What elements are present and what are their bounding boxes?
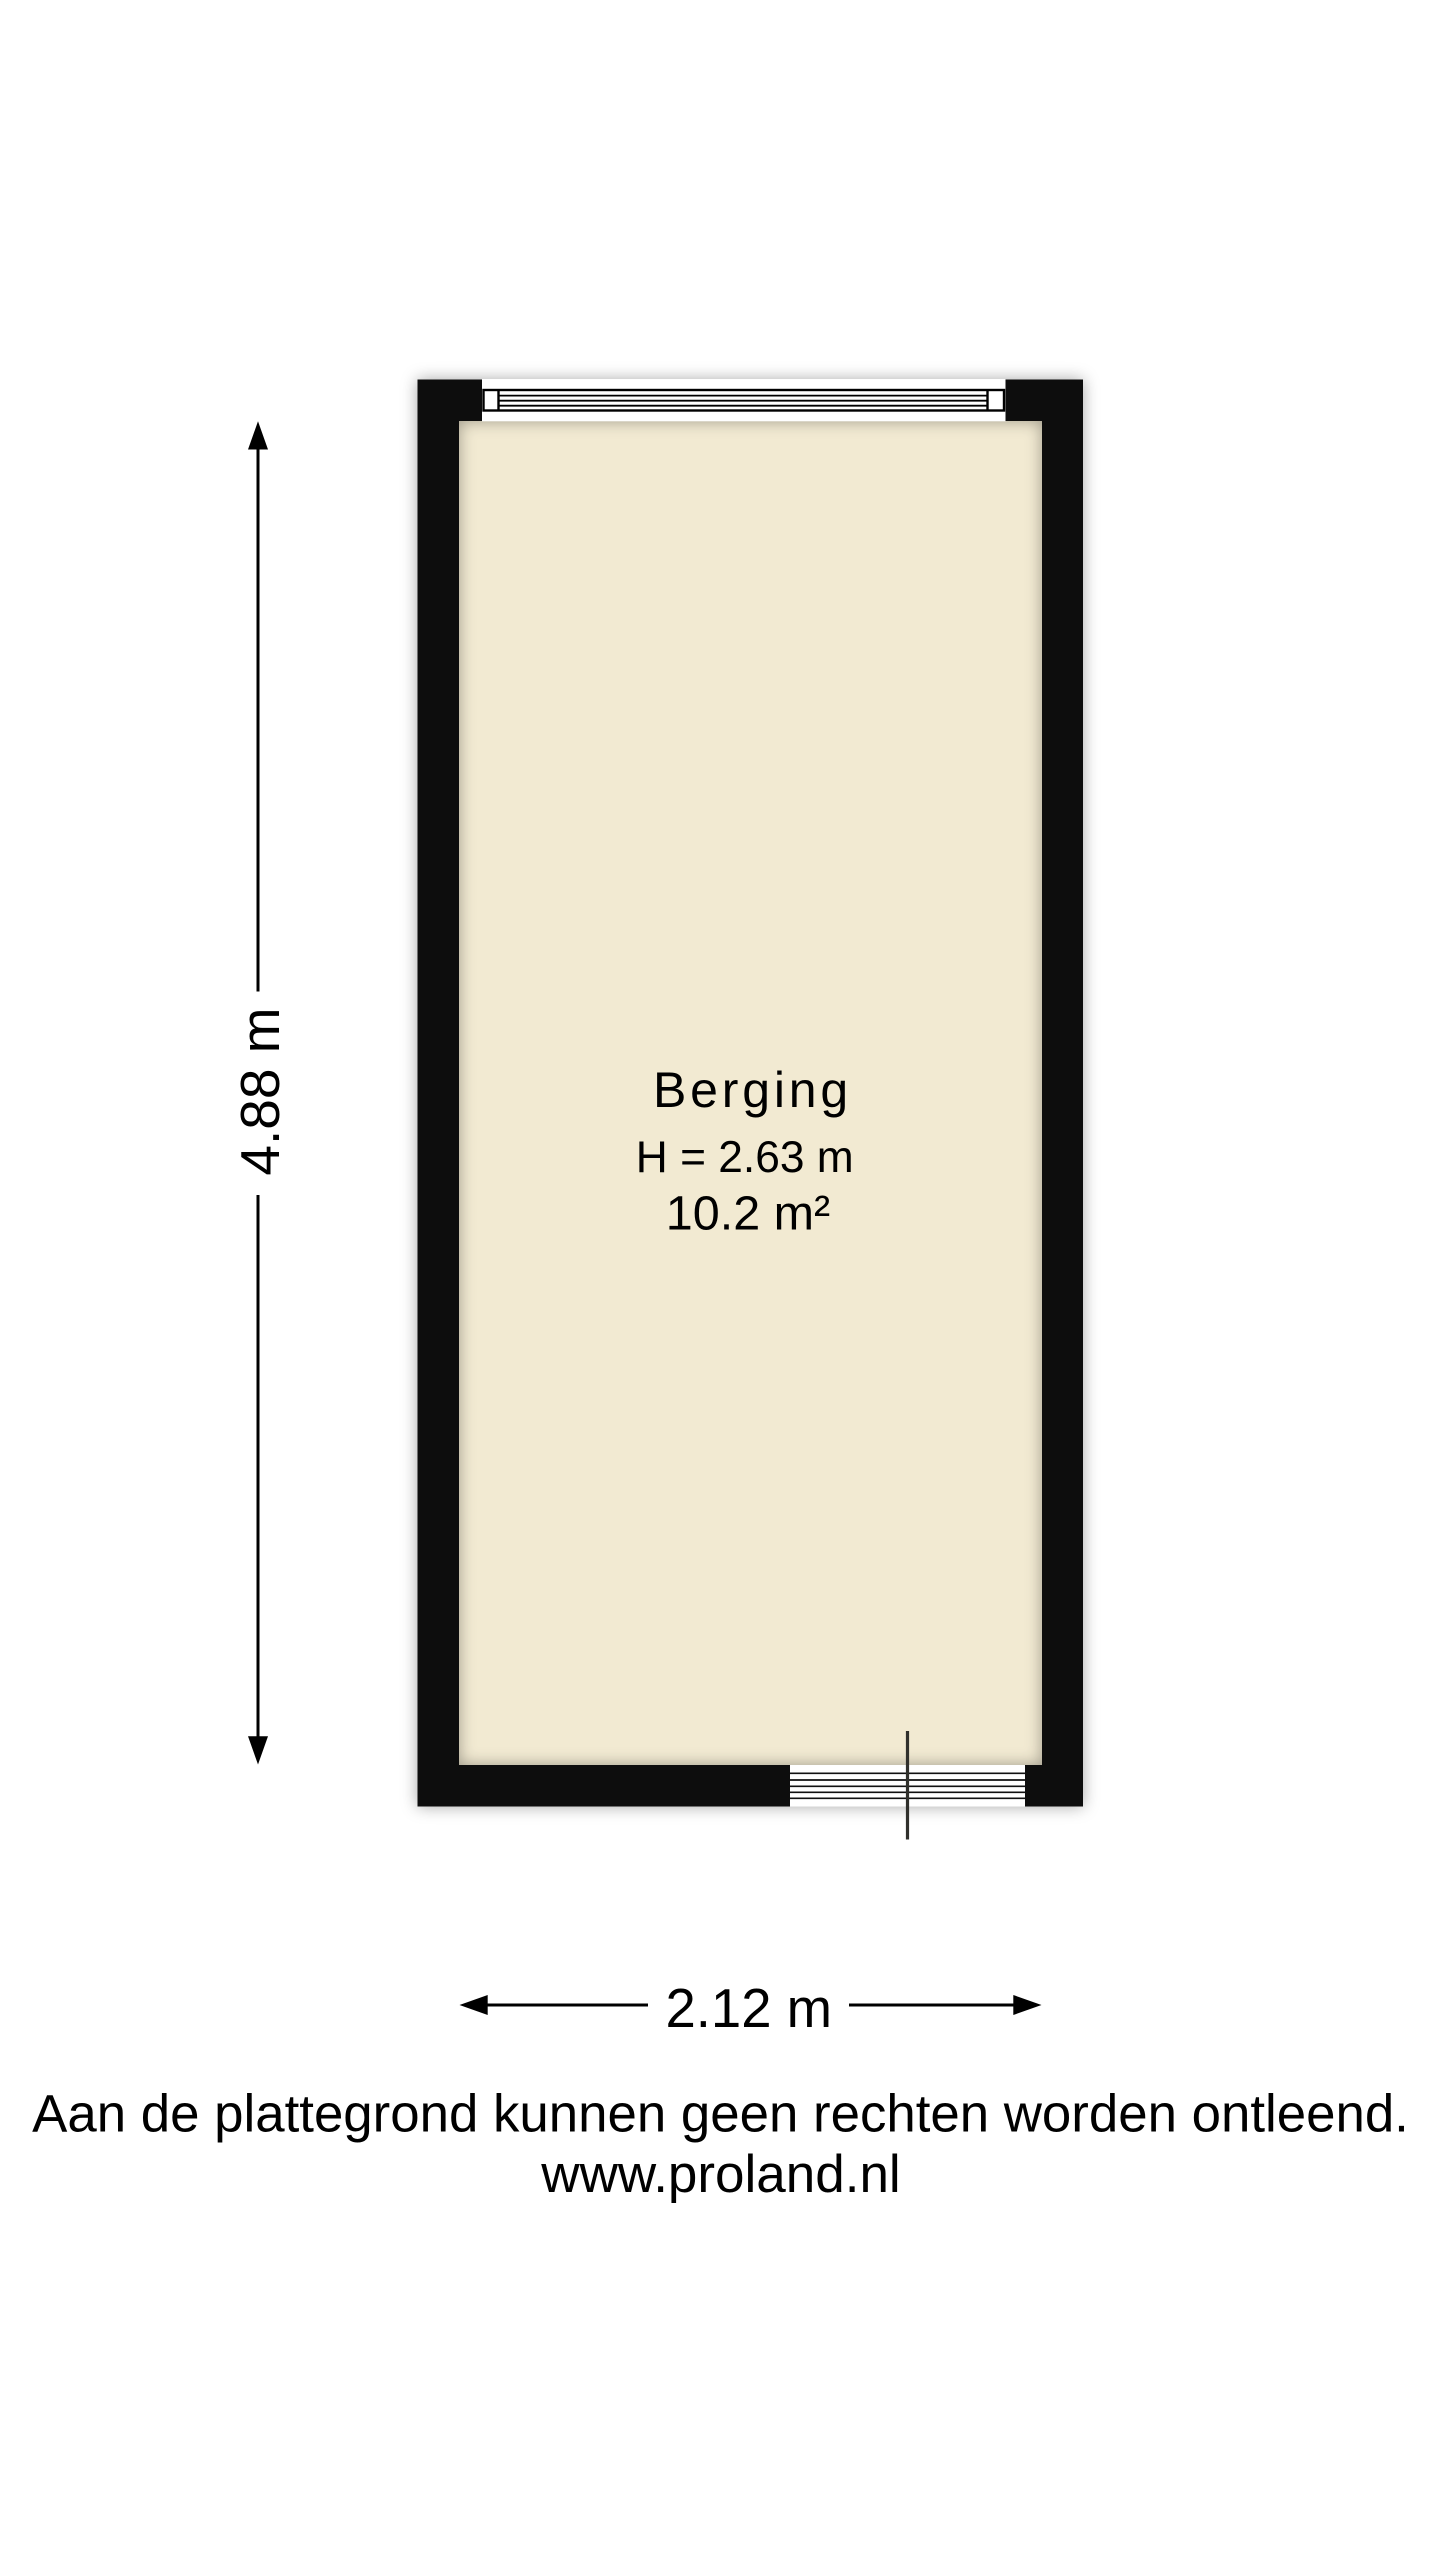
svg-text:www.proland.nl: www.proland.nl [540,2145,900,2204]
svg-text:Aan de plattegrond kunnen geen: Aan de plattegrond kunnen geen rechten w… [32,2085,1409,2144]
svg-text:2.12 m: 2.12 m [665,1978,832,2039]
svg-text:4.88 m: 4.88 m [229,1007,291,1175]
svg-text:H = 2.63 m: H = 2.63 m [636,1133,854,1182]
svg-text:10.2 m²: 10.2 m² [666,1187,830,1241]
svg-text:Berging: Berging [653,1062,852,1118]
